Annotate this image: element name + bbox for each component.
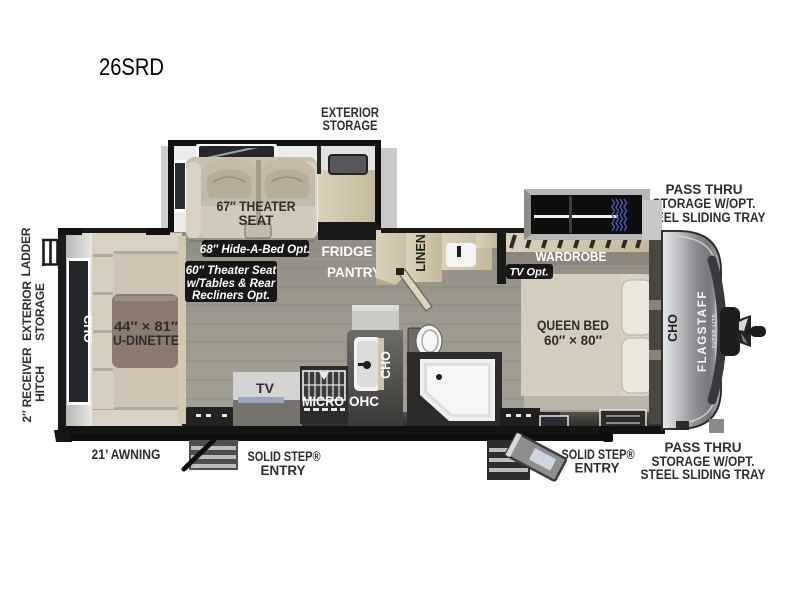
svg-text:PASS THRU: PASS THRU bbox=[666, 182, 743, 197]
svg-text:2″ RECEIVER: 2″ RECEIVER bbox=[20, 347, 34, 422]
svg-text:TV: TV bbox=[256, 380, 275, 396]
svg-text:21’ AWNING: 21’ AWNING bbox=[92, 447, 161, 462]
svg-text:CHO: CHO bbox=[379, 351, 393, 379]
svg-text:ENTRY: ENTRY bbox=[575, 461, 620, 476]
svg-text:w/Tables & Rear: w/Tables & Rear bbox=[187, 278, 276, 290]
svg-text:TV Opt.: TV Opt. bbox=[509, 267, 548, 279]
svg-text:STEEL SLIDING TRAY: STEEL SLIDING TRAY bbox=[641, 467, 766, 482]
svg-text:Recliners Opt.: Recliners Opt. bbox=[192, 290, 270, 302]
svg-text:OHC: OHC bbox=[349, 394, 379, 409]
svg-text:U-DINETTE: U-DINETTE bbox=[113, 333, 179, 348]
svg-text:WARDROBE: WARDROBE bbox=[536, 249, 607, 264]
svg-text:STORAGE: STORAGE bbox=[33, 283, 47, 341]
svg-text:26SRD: 26SRD bbox=[99, 54, 164, 81]
svg-text:SEAT: SEAT bbox=[238, 213, 274, 228]
svg-text:CHO: CHO bbox=[666, 314, 680, 342]
svg-text:PASS THRU: PASS THRU bbox=[665, 440, 742, 455]
svg-text:FRIDGE: FRIDGE bbox=[321, 244, 372, 259]
svg-text:STORAGE W/OPT.: STORAGE W/OPT. bbox=[653, 196, 756, 211]
svg-text:ENTRY: ENTRY bbox=[261, 463, 306, 478]
svg-text:STORAGE: STORAGE bbox=[323, 118, 378, 133]
svg-text:60″ × 80″: 60″ × 80″ bbox=[544, 332, 602, 348]
svg-text:68″ Hide-A-Bed Opt.: 68″ Hide-A-Bed Opt. bbox=[200, 244, 310, 256]
svg-text:60″ Theater Seat: 60″ Theater Seat bbox=[186, 265, 278, 277]
svg-text:HITCH: HITCH bbox=[33, 366, 47, 402]
svg-text:LINEN: LINEN bbox=[414, 234, 428, 272]
svg-text:QUEEN BED: QUEEN BED bbox=[537, 317, 609, 333]
svg-text:LADDER: LADDER bbox=[19, 227, 33, 276]
svg-text:FLAGSTAFF: FLAGSTAFF bbox=[697, 290, 709, 372]
svg-text:SUPER LITE: SUPER LITE bbox=[711, 313, 716, 348]
svg-text:PANTRY: PANTRY bbox=[327, 265, 381, 280]
svg-text:67″ THEATER: 67″ THEATER bbox=[217, 199, 296, 214]
svg-text:44″ × 81″: 44″ × 81″ bbox=[114, 319, 179, 334]
svg-text:SOLID STEP®: SOLID STEP® bbox=[248, 449, 321, 464]
svg-text:EXTERIOR: EXTERIOR bbox=[20, 281, 34, 341]
svg-text:MICRO: MICRO bbox=[302, 394, 344, 409]
